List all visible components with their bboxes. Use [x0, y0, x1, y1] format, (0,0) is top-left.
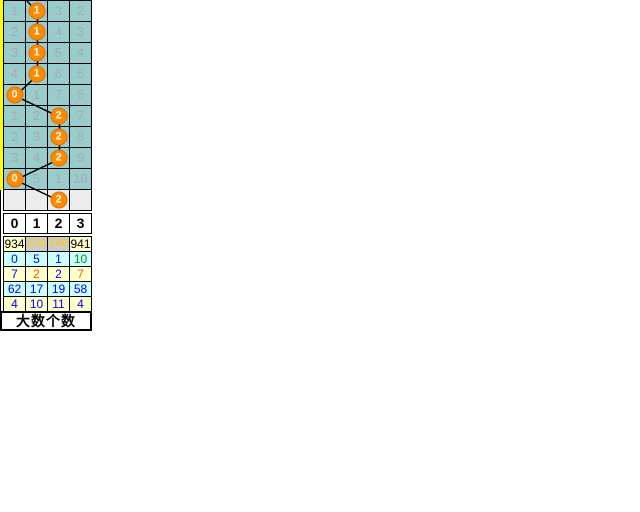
miss-count-cell: 6	[70, 85, 91, 105]
miss-count-cell: 4	[48, 22, 69, 42]
miss-count-cell: 3	[48, 1, 69, 21]
hit-circle: 2	[50, 108, 67, 125]
chart-title: 大数个数	[0, 311, 92, 331]
stat-cell: 5	[26, 252, 47, 266]
column-header-row: 0123	[3, 213, 92, 234]
miss-count-cell: 4	[26, 148, 47, 168]
miss-count-cell: 22	[48, 106, 69, 126]
miss-count-cell	[26, 190, 47, 210]
hit-circle: 0	[6, 171, 23, 188]
miss-count-cell: 11	[26, 64, 47, 84]
stat-cell: 7	[70, 267, 91, 281]
miss-count-cell: 3	[70, 22, 91, 42]
lottery-trend-chart: 1113221143311544116500176122272322834229…	[0, 0, 92, 331]
miss-count-cell: 11	[26, 43, 47, 63]
miss-count-cell: 9	[70, 148, 91, 168]
stat-cell: 10	[70, 252, 91, 266]
hit-circle: 1	[28, 24, 45, 41]
miss-count-cell: 22	[48, 127, 69, 147]
miss-count-cell	[4, 190, 25, 210]
column-header: 3	[70, 214, 91, 233]
stat-cell: 4	[4, 297, 25, 311]
miss-count-cell: 5	[70, 64, 91, 84]
miss-count-cell: 2	[4, 22, 25, 42]
miss-count-cell: 7	[48, 85, 69, 105]
stat-cell: 19	[48, 282, 69, 296]
miss-count-cell: 00	[4, 85, 25, 105]
miss-count-cell: 1	[48, 169, 69, 189]
hit-circle: 1	[28, 66, 45, 83]
miss-count-cell: 11	[26, 1, 47, 21]
miss-count-cell: 2	[48, 190, 69, 210]
stats-table: 9342732275094105110722762171958410114	[3, 236, 92, 312]
left-border-line	[0, 190, 1, 331]
miss-count-cell: 3	[4, 43, 25, 63]
miss-count-cell: 11	[26, 22, 47, 42]
miss-count-cell: 1	[4, 106, 25, 126]
stat-cell: 2	[48, 267, 69, 281]
miss-count-cell: 6	[48, 64, 69, 84]
miss-count-cell: 1	[4, 1, 25, 21]
miss-count-cell: 7	[70, 106, 91, 126]
stat-cell: 4	[70, 297, 91, 311]
miss-count-cell: 3	[4, 148, 25, 168]
miss-count-cell: 10	[70, 169, 91, 189]
miss-count-cell: 5	[26, 169, 47, 189]
miss-count-cell: 1	[26, 85, 47, 105]
hit-circle: 0	[6, 87, 23, 104]
hit-circle: 2	[50, 150, 67, 167]
miss-count-cell: 00	[4, 169, 25, 189]
stat-cell: 2750	[48, 237, 69, 251]
column-header: 0	[4, 214, 25, 233]
miss-count-cell: 3	[26, 127, 47, 147]
stat-cell: 7	[4, 267, 25, 281]
miss-count-cell: 4	[4, 64, 25, 84]
stat-cell: 2732	[26, 237, 47, 251]
miss-count-cell: 2	[4, 127, 25, 147]
stat-cell: 1	[48, 252, 69, 266]
miss-count-cell: 2	[26, 106, 47, 126]
stat-cell: 58	[70, 282, 91, 296]
miss-count-cell	[70, 190, 91, 210]
hit-circle: 1	[28, 3, 45, 20]
miss-count-cell: 22	[48, 148, 69, 168]
stat-cell: 62	[4, 282, 25, 296]
miss-count-cell: 5	[48, 43, 69, 63]
stat-cell: 941	[70, 237, 91, 251]
miss-count-cell: 8	[70, 127, 91, 147]
stat-cell: 0	[4, 252, 25, 266]
column-header: 2	[48, 214, 69, 233]
column-header: 1	[26, 214, 47, 233]
miss-count-cell: 2	[70, 1, 91, 21]
miss-count-cell: 4	[70, 43, 91, 63]
stat-cell: 10	[26, 297, 47, 311]
stat-cell: 934	[4, 237, 25, 251]
hit-circle: 1	[28, 45, 45, 62]
hit-circle: 2	[50, 192, 67, 209]
trend-grid: 1113221143311544116500176122272322834229…	[3, 0, 92, 211]
hit-circle: 2	[50, 129, 67, 146]
stat-cell: 2	[26, 267, 47, 281]
stat-cell: 11	[48, 297, 69, 311]
stat-cell: 17	[26, 282, 47, 296]
